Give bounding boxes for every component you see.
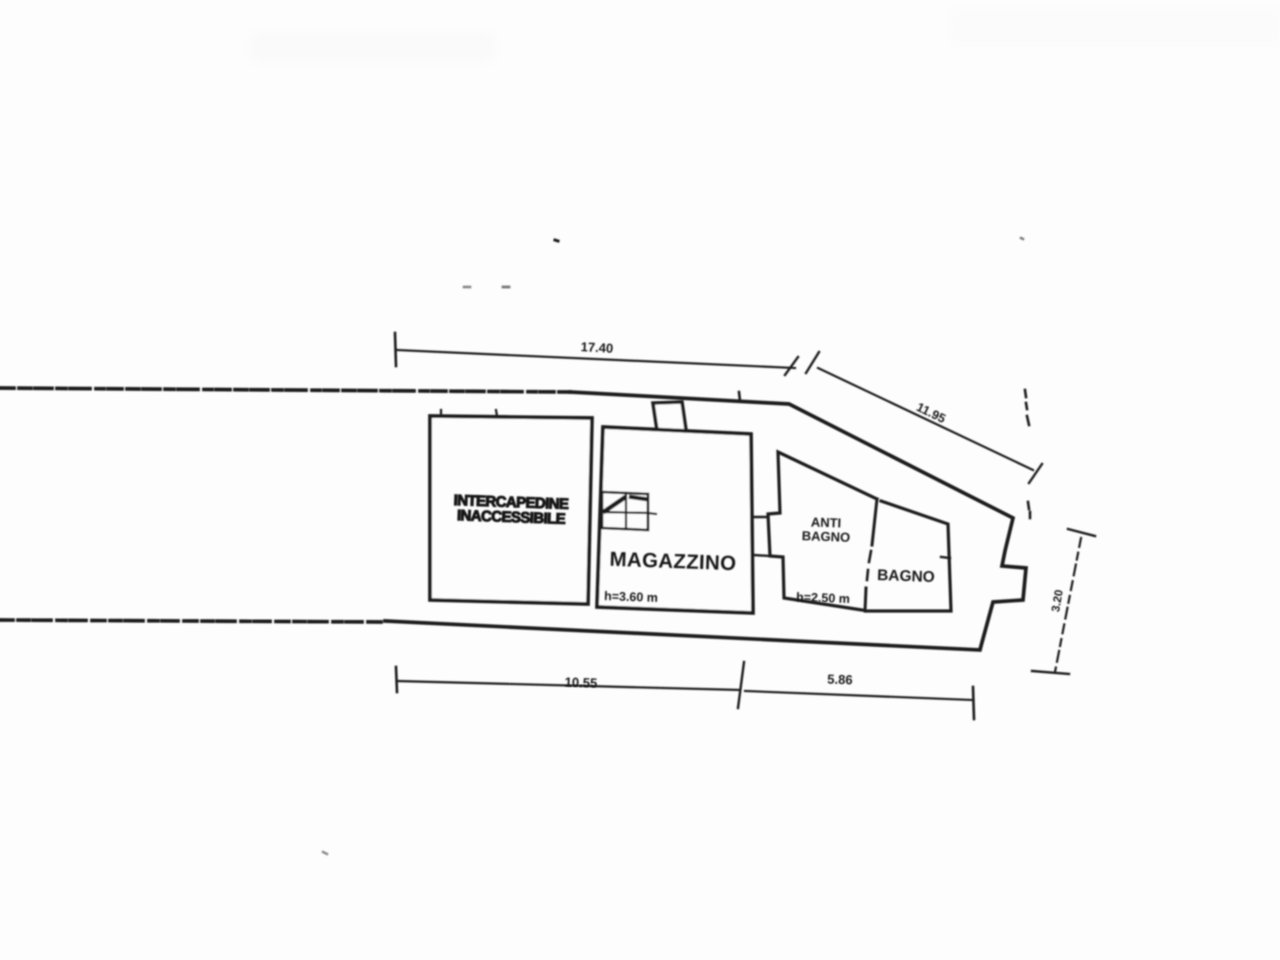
svg-text:10.55: 10.55 bbox=[564, 674, 597, 690]
svg-text:h=2.50 m: h=2.50 m bbox=[796, 590, 850, 606]
svg-text:MAGAZZINO: MAGAZZINO bbox=[609, 548, 737, 575]
svg-text:5.86: 5.86 bbox=[827, 672, 853, 688]
svg-text:BAGNO: BAGNO bbox=[877, 567, 935, 586]
svg-text:17.40: 17.40 bbox=[580, 339, 613, 356]
svg-text:BAGNO: BAGNO bbox=[802, 528, 851, 545]
svg-text:h=3.60 m: h=3.60 m bbox=[604, 589, 658, 605]
